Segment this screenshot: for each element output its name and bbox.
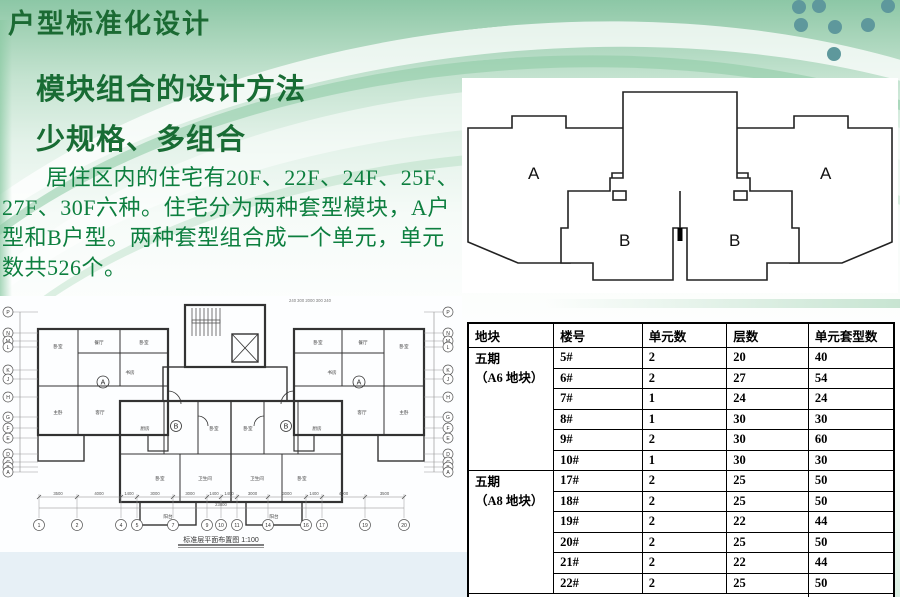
table-row: 五期 （A6 地块） 5# 2 20 40 [468,348,894,369]
table-cell: 2 [642,532,727,553]
logo-dot [794,18,808,32]
plan-bottom-band [0,552,468,597]
table-cell: 1 [642,450,727,471]
table-cell: 30 [808,409,894,430]
table-cell: 20 [727,348,809,369]
svg-text:L: L [7,345,10,351]
table-cell-empty [468,594,808,597]
svg-text:书房: 书房 [125,369,135,376]
table-cell: 2 [642,368,727,389]
svg-text:阳台: 阳台 [163,513,173,520]
column-header: 地块 [468,323,554,348]
table-cell: 30 [808,450,894,471]
slide: 户型标准化设计 模块组合的设计方法 少规格、多组合 居住区内的住宅有20F、22… [0,0,900,597]
table-cell: 19# [554,512,643,533]
svg-text:B: B [174,424,179,431]
svg-text:1: 1 [38,523,41,529]
svg-text:卧室: 卧室 [53,343,63,350]
table-cell: 50 [808,491,894,512]
table-cell: 2 [642,512,727,533]
logo-dots-icon [760,0,900,70]
table-cell: 22# [554,573,643,594]
svg-text:主卧: 主卧 [399,409,409,416]
table-cell: 25 [727,573,809,594]
svg-text:餐厅: 餐厅 [358,339,368,346]
block-cell: 五期 （A6 地块） [468,348,554,471]
column-header: 层数 [727,323,809,348]
table-cell: 27 [727,368,809,389]
svg-text:1400: 1400 [309,491,319,496]
mid-streak [545,299,900,308]
table-cell: 22 [727,512,809,533]
logo-dot [861,18,875,32]
notch [613,191,626,200]
svg-text:厨房: 厨房 [312,425,322,432]
dimension-lines [20,312,434,508]
table-cell: 2 [642,491,727,512]
top-dimension-text: 240 300 2000 300 240 [289,298,332,303]
table-cell: 25 [727,471,809,492]
svg-text:客厅: 客厅 [95,409,105,416]
table-cell: 50 [808,532,894,553]
table-cell: 44 [808,553,894,574]
svg-text:L: L [447,345,450,351]
svg-text:7: 7 [172,523,175,529]
heading-few-specs: 少规格、多组合 [36,116,246,158]
column-header: 楼号 [554,323,643,348]
svg-text:卧室: 卧室 [297,475,307,482]
svg-text:主卧: 主卧 [53,409,63,416]
unit-label-b-left: B [619,231,630,250]
unit-count-table: 地块 楼号 单元数 层数 单元套型数 五期 （A6 地块） 5# 2 20 40… [467,322,895,597]
svg-text:卧室: 卧室 [243,425,253,432]
column-header: 单元数 [642,323,727,348]
table-cell: 9# [554,430,643,451]
svg-text:F: F [6,426,9,432]
table-row: 五期 （A8 地块） 17# 2 25 50 [468,471,894,492]
svg-text:卫生间: 卫生间 [198,475,212,482]
unit-combination-diagram: A B B A [462,78,898,293]
svg-text:H: H [6,395,10,401]
svg-text:20: 20 [401,523,407,529]
notch [734,191,747,200]
svg-text:卧室: 卧室 [155,475,165,482]
svg-text:4000: 4000 [339,491,349,496]
svg-text:3000: 3000 [185,491,195,496]
svg-text:卧室: 卧室 [313,339,323,346]
table-cell: 10# [554,450,643,471]
logo-dot [812,0,826,13]
block-cell: 五期 （A8 地块） [468,471,554,594]
svg-text:卧室: 卧室 [399,343,409,350]
table-cell: 60 [808,430,894,451]
svg-text:2: 2 [76,523,79,529]
svg-text:B: B [284,424,289,431]
table-cell: 21# [554,553,643,574]
svg-text:卧室: 卧室 [139,339,149,346]
svg-text:厨房: 厨房 [140,425,150,432]
table-cell: 25 [727,532,809,553]
page-title: 户型标准化设计 [8,2,211,41]
unit-outlines [468,92,892,280]
table-cell: 1 [642,389,727,410]
table-cell: 20# [554,532,643,553]
svg-text:16: 16 [303,523,309,529]
svg-text:19: 19 [362,523,368,529]
svg-text:3000: 3000 [150,491,160,496]
svg-text:阳台: 阳台 [269,513,279,520]
logo-dot [881,0,895,13]
table-header-row: 地块 楼号 单元数 层数 单元套型数 [468,323,894,348]
svg-text:1400: 1400 [209,491,219,496]
table-cell: 5# [554,348,643,369]
floor-plan-caption: 标准层平面布置图 1:100 [183,535,259,544]
floor-plan-panel: A A B B 卧室 餐厅 卧室 主卧 客厅 卧室 餐厅 卧室 主卧 客厅 厨房… [0,296,462,560]
table-cell: 40 [808,348,894,369]
logo-dot [792,0,806,14]
table-cell: 24 [727,389,809,410]
table-cell: 54 [808,368,894,389]
block-sub: （A8 地块） [475,492,547,511]
svg-text:4000: 4000 [94,491,104,496]
table-cell: 2 [642,471,727,492]
table-cell: 1 [642,409,727,430]
center-bar [678,228,683,241]
unit-label-a-left: A [528,164,540,183]
svg-text:10: 10 [218,523,224,529]
table-cell: 17# [554,471,643,492]
table-cell: 44 [808,512,894,533]
svg-text:H: H [446,395,450,401]
svg-text:14: 14 [265,523,271,529]
column-header: 单元套型数 [808,323,894,348]
svg-text:F: F [446,426,449,432]
svg-text:卫生间: 卫生间 [250,475,264,482]
svg-text:客厅: 客厅 [357,409,367,416]
table-cell: 2 [642,553,727,574]
table-cell: 2 [642,573,727,594]
table-total-row: 526 [468,594,894,597]
total-dimension-text: 23800 [215,502,227,507]
table-cell: 18# [554,491,643,512]
svg-text:4: 4 [120,523,123,529]
svg-text:3500: 3500 [380,491,390,496]
table-cell: 8# [554,409,643,430]
svg-text:卧室: 卧室 [209,425,219,432]
block-name: 五期 [475,473,547,492]
body-paragraph: 居住区内的住宅有20F、22F、24F、25F、27F、30F六种。住宅分为两种… [2,163,460,283]
table-cell: 7# [554,389,643,410]
block-sub: （A6 地块） [475,369,547,388]
svg-text:3000: 3000 [248,491,258,496]
svg-text:G: G [6,415,10,421]
table-total-cell: 526 [808,594,894,597]
table-cell: 6# [554,368,643,389]
table-cell: 50 [808,573,894,594]
logo-dot [828,20,842,34]
table-cell: 30 [727,409,809,430]
table-cell: 2 [642,430,727,451]
svg-text:书房: 书房 [327,369,337,376]
table-cell: 30 [727,450,809,471]
heading-module-method: 模块组合的设计方法 [36,66,306,108]
svg-text:9: 9 [206,523,209,529]
table-cell: 2 [642,348,727,369]
table-cell: 30 [727,430,809,451]
svg-text:5: 5 [136,523,139,529]
table-cell: 50 [808,471,894,492]
table-cell: 24 [808,389,894,410]
svg-text:1400: 1400 [124,491,134,496]
svg-text:17: 17 [319,523,325,529]
svg-text:A: A [101,380,106,387]
svg-text:3500: 3500 [53,491,63,496]
svg-text:餐厅: 餐厅 [94,339,104,346]
block-name: 五期 [475,350,547,369]
svg-text:1400: 1400 [224,491,234,496]
svg-text:A: A [357,380,362,387]
unit-label-b-right: B [729,231,740,250]
table-cell: 25 [727,491,809,512]
table-cell: 22 [727,553,809,574]
svg-text:G: G [446,415,450,421]
svg-text:11: 11 [234,523,239,529]
logo-dot [827,47,841,61]
svg-text:3000: 3000 [282,491,292,496]
unit-label-a-right: A [820,164,832,183]
